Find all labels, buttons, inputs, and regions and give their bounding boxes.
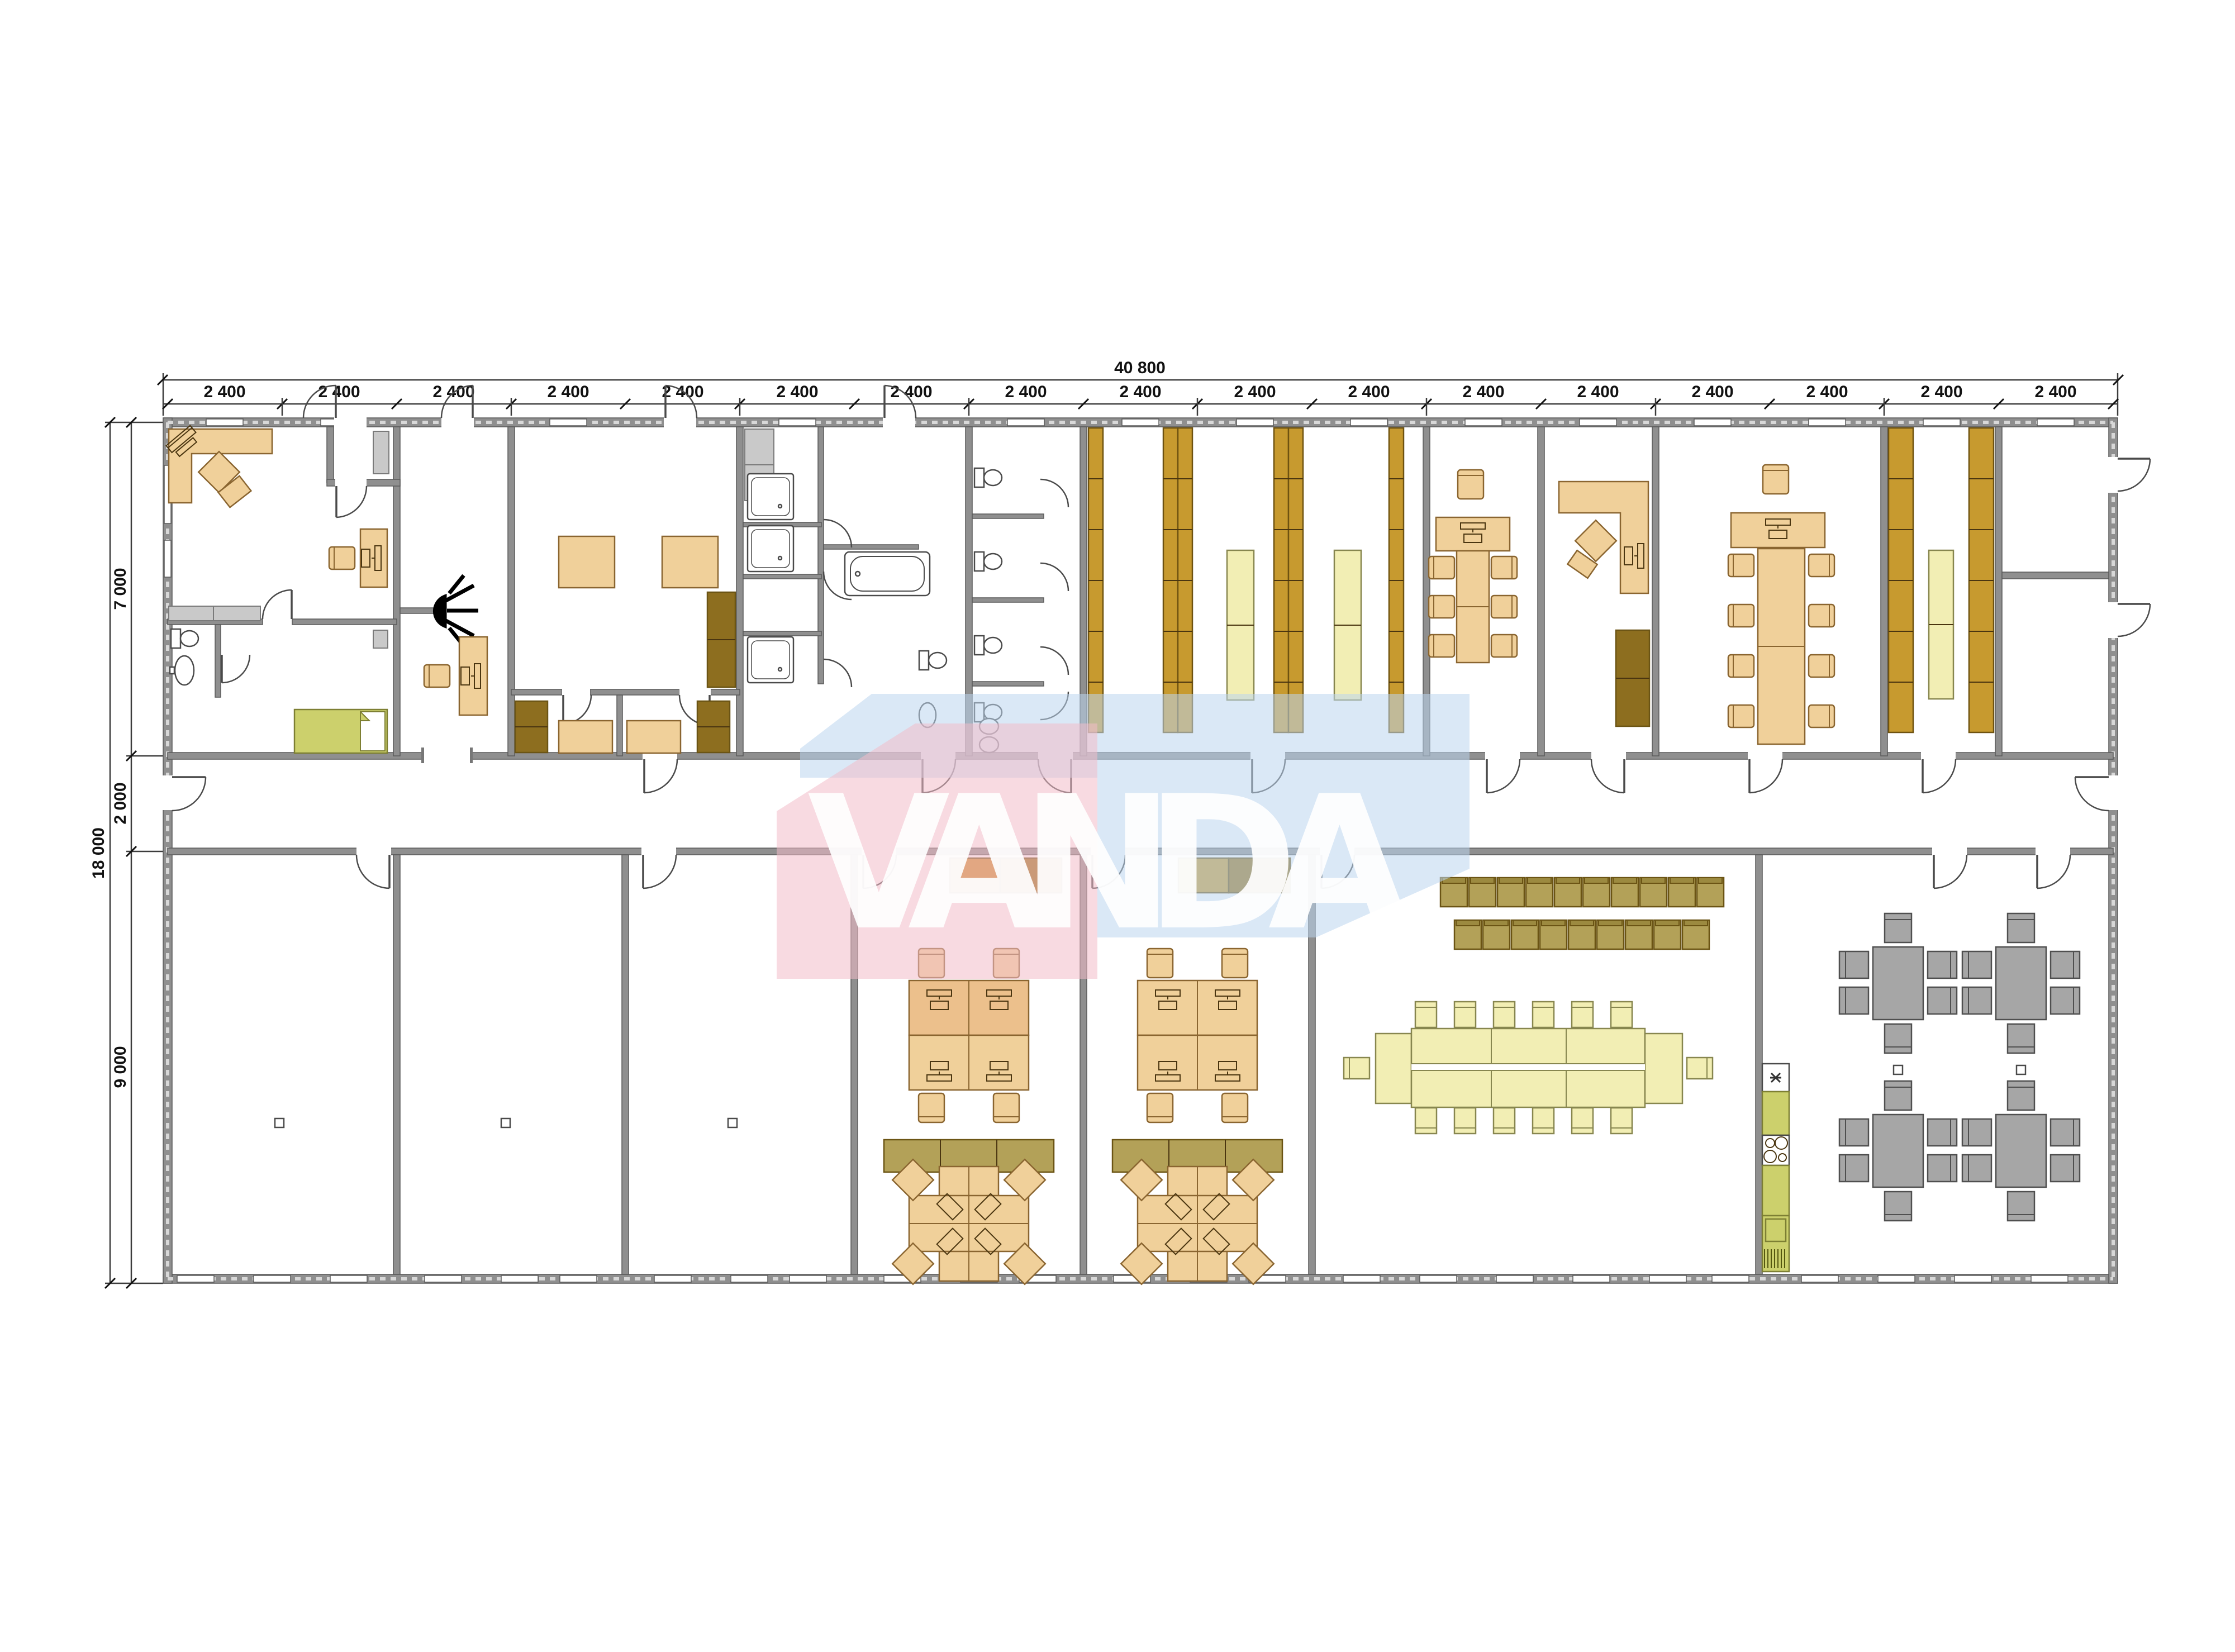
dining-set (1962, 1081, 2080, 1221)
freestanding-shelf (1929, 550, 1953, 699)
sofa (515, 701, 548, 753)
lounge-room (515, 536, 735, 753)
desk-chair (1458, 470, 1483, 499)
svg-text:2 400: 2 400 (318, 383, 360, 401)
floor-box (728, 1118, 737, 1127)
closet-cabinet (373, 431, 389, 474)
end-chair (1344, 1058, 1369, 1079)
dining-set (1962, 913, 2080, 1053)
chair (1809, 554, 1834, 577)
floor-plan-page: 40 800 2 400 2 400 2 400 2 400 2 400 2 4… (0, 0, 2235, 1652)
bathtub-icon (845, 552, 930, 596)
freestanding-shelf (1334, 550, 1361, 700)
dining-room (1839, 913, 2080, 1221)
shelving-column (1889, 428, 1913, 732)
wall-lamp-icon (435, 575, 478, 646)
floor-box (1894, 1065, 1903, 1074)
chair (1809, 705, 1834, 727)
chair (1809, 604, 1834, 627)
svg-text:2 400: 2 400 (1577, 383, 1619, 401)
sofa (697, 701, 730, 753)
cross-desk-cluster (892, 1159, 1045, 1284)
freestanding-shelf (1227, 550, 1254, 700)
dim-left-seg-2000: 2 000 (111, 782, 130, 824)
floor-plan-canvas: 40 800 2 400 2 400 2 400 2 400 2 400 2 4… (0, 0, 2235, 1652)
wc-toilet-icon (919, 651, 947, 670)
low-table (627, 721, 681, 753)
table (662, 536, 718, 588)
office-b (1559, 482, 1649, 726)
chair (1147, 1093, 1173, 1122)
chair-row-2 (1454, 920, 1709, 949)
chair (1728, 604, 1754, 627)
svg-text:2 400: 2 400 (890, 383, 932, 401)
chair (993, 1093, 1019, 1122)
wc-toilet-icon (974, 468, 1002, 487)
chair (1728, 705, 1754, 727)
cooktop-icon (1762, 1135, 1789, 1165)
chair (1809, 655, 1834, 677)
corridor-passage (421, 748, 473, 763)
shower-icon (748, 637, 793, 683)
small-office (400, 575, 487, 715)
watermark: VANDA (777, 694, 1470, 979)
shelving-column (1389, 428, 1404, 732)
office-c-meeting (1728, 465, 1834, 744)
chair (1429, 556, 1454, 579)
table (559, 536, 615, 588)
fridge-unit (1762, 1216, 1789, 1272)
sofa (1616, 630, 1649, 726)
long-meeting-table (1758, 549, 1805, 744)
floor-box (2017, 1065, 2025, 1074)
dining-set (1839, 913, 1957, 1053)
interior-doors (222, 478, 1068, 725)
svg-text:2 400: 2 400 (1462, 383, 1504, 401)
single-bed (294, 710, 387, 753)
chair (1491, 556, 1517, 579)
watermark-text: VANDA (807, 756, 1412, 971)
dim-left-seg-7000: 7 000 (111, 568, 130, 610)
desk-cluster (1138, 980, 1257, 1090)
dim-left-total-label: 18 000 (89, 827, 108, 879)
table-chairs-top (1415, 1002, 1632, 1027)
chair (919, 1093, 944, 1122)
storage-counter (213, 606, 260, 621)
table-chairs-bottom (1415, 1108, 1632, 1134)
desk-cluster (909, 980, 1029, 1090)
svg-text:2 400: 2 400 (1348, 383, 1390, 401)
shelving-column (1274, 428, 1303, 732)
wc-toilet-icon (974, 636, 1002, 655)
low-table (559, 721, 612, 753)
wc-toilet-icon (171, 629, 198, 648)
svg-text:2 400: 2 400 (1691, 383, 1733, 401)
chair (1222, 1093, 1248, 1122)
chair (1429, 635, 1454, 657)
svg-text:2 400: 2 400 (1119, 383, 1161, 401)
chair (1728, 655, 1754, 677)
svg-text:2 400: 2 400 (2034, 383, 2076, 401)
svg-text:2 400: 2 400 (203, 383, 245, 401)
dim-left-seg-9000: 9 000 (111, 1046, 130, 1088)
bedside-cabinet (373, 630, 388, 648)
desk-chair (1763, 465, 1789, 494)
sink-icon (175, 656, 194, 685)
wardrobe (707, 592, 735, 687)
shelving-column (1088, 428, 1103, 732)
desk-chair (329, 547, 355, 569)
dining-set (1839, 1081, 1957, 1221)
floor-box (501, 1118, 510, 1127)
banquet-table (1376, 1029, 1682, 1107)
shelving-column (1163, 428, 1192, 732)
corridor-west-door (162, 775, 206, 811)
floor-box (275, 1118, 284, 1127)
archive-room-2 (1889, 428, 1994, 732)
svg-text:2 400: 2 400 (776, 383, 818, 401)
dim-top-total-label: 40 800 (1114, 359, 1166, 377)
svg-text:2 400: 2 400 (1920, 383, 1962, 401)
wc-toilet-icon (974, 552, 1002, 571)
kitchen-counter (1762, 1165, 1789, 1216)
chair (1429, 596, 1454, 618)
kitchen-strip (1762, 1064, 1789, 1272)
desk-chair (424, 665, 450, 687)
svg-text:2 400: 2 400 (1005, 383, 1047, 401)
svg-text:2 400: 2 400 (1806, 383, 1848, 401)
chair (1491, 635, 1517, 657)
svg-text:2 400: 2 400 (547, 383, 589, 401)
corridor-east-door (2075, 775, 2119, 811)
chair (1728, 554, 1754, 577)
shower-icon (748, 474, 793, 520)
cross-desk-cluster (1121, 1159, 1274, 1284)
office-a (1429, 470, 1517, 663)
dim-top-segment-labels: 2 400 2 400 2 400 2 400 2 400 2 400 2 40… (203, 383, 2076, 401)
kitchen-counter (1762, 1092, 1789, 1135)
meeting-table (1457, 551, 1489, 663)
svg-text:2 400: 2 400 (1234, 383, 1276, 401)
storage-counter (169, 606, 213, 621)
end-chair (1687, 1058, 1713, 1079)
manager-suite (166, 426, 389, 753)
chair-row-1 (1440, 878, 1724, 907)
archive-room-1 (1088, 428, 1404, 732)
shelving-column (1969, 428, 1994, 732)
shower-icon (748, 526, 793, 572)
chair (1491, 596, 1517, 618)
